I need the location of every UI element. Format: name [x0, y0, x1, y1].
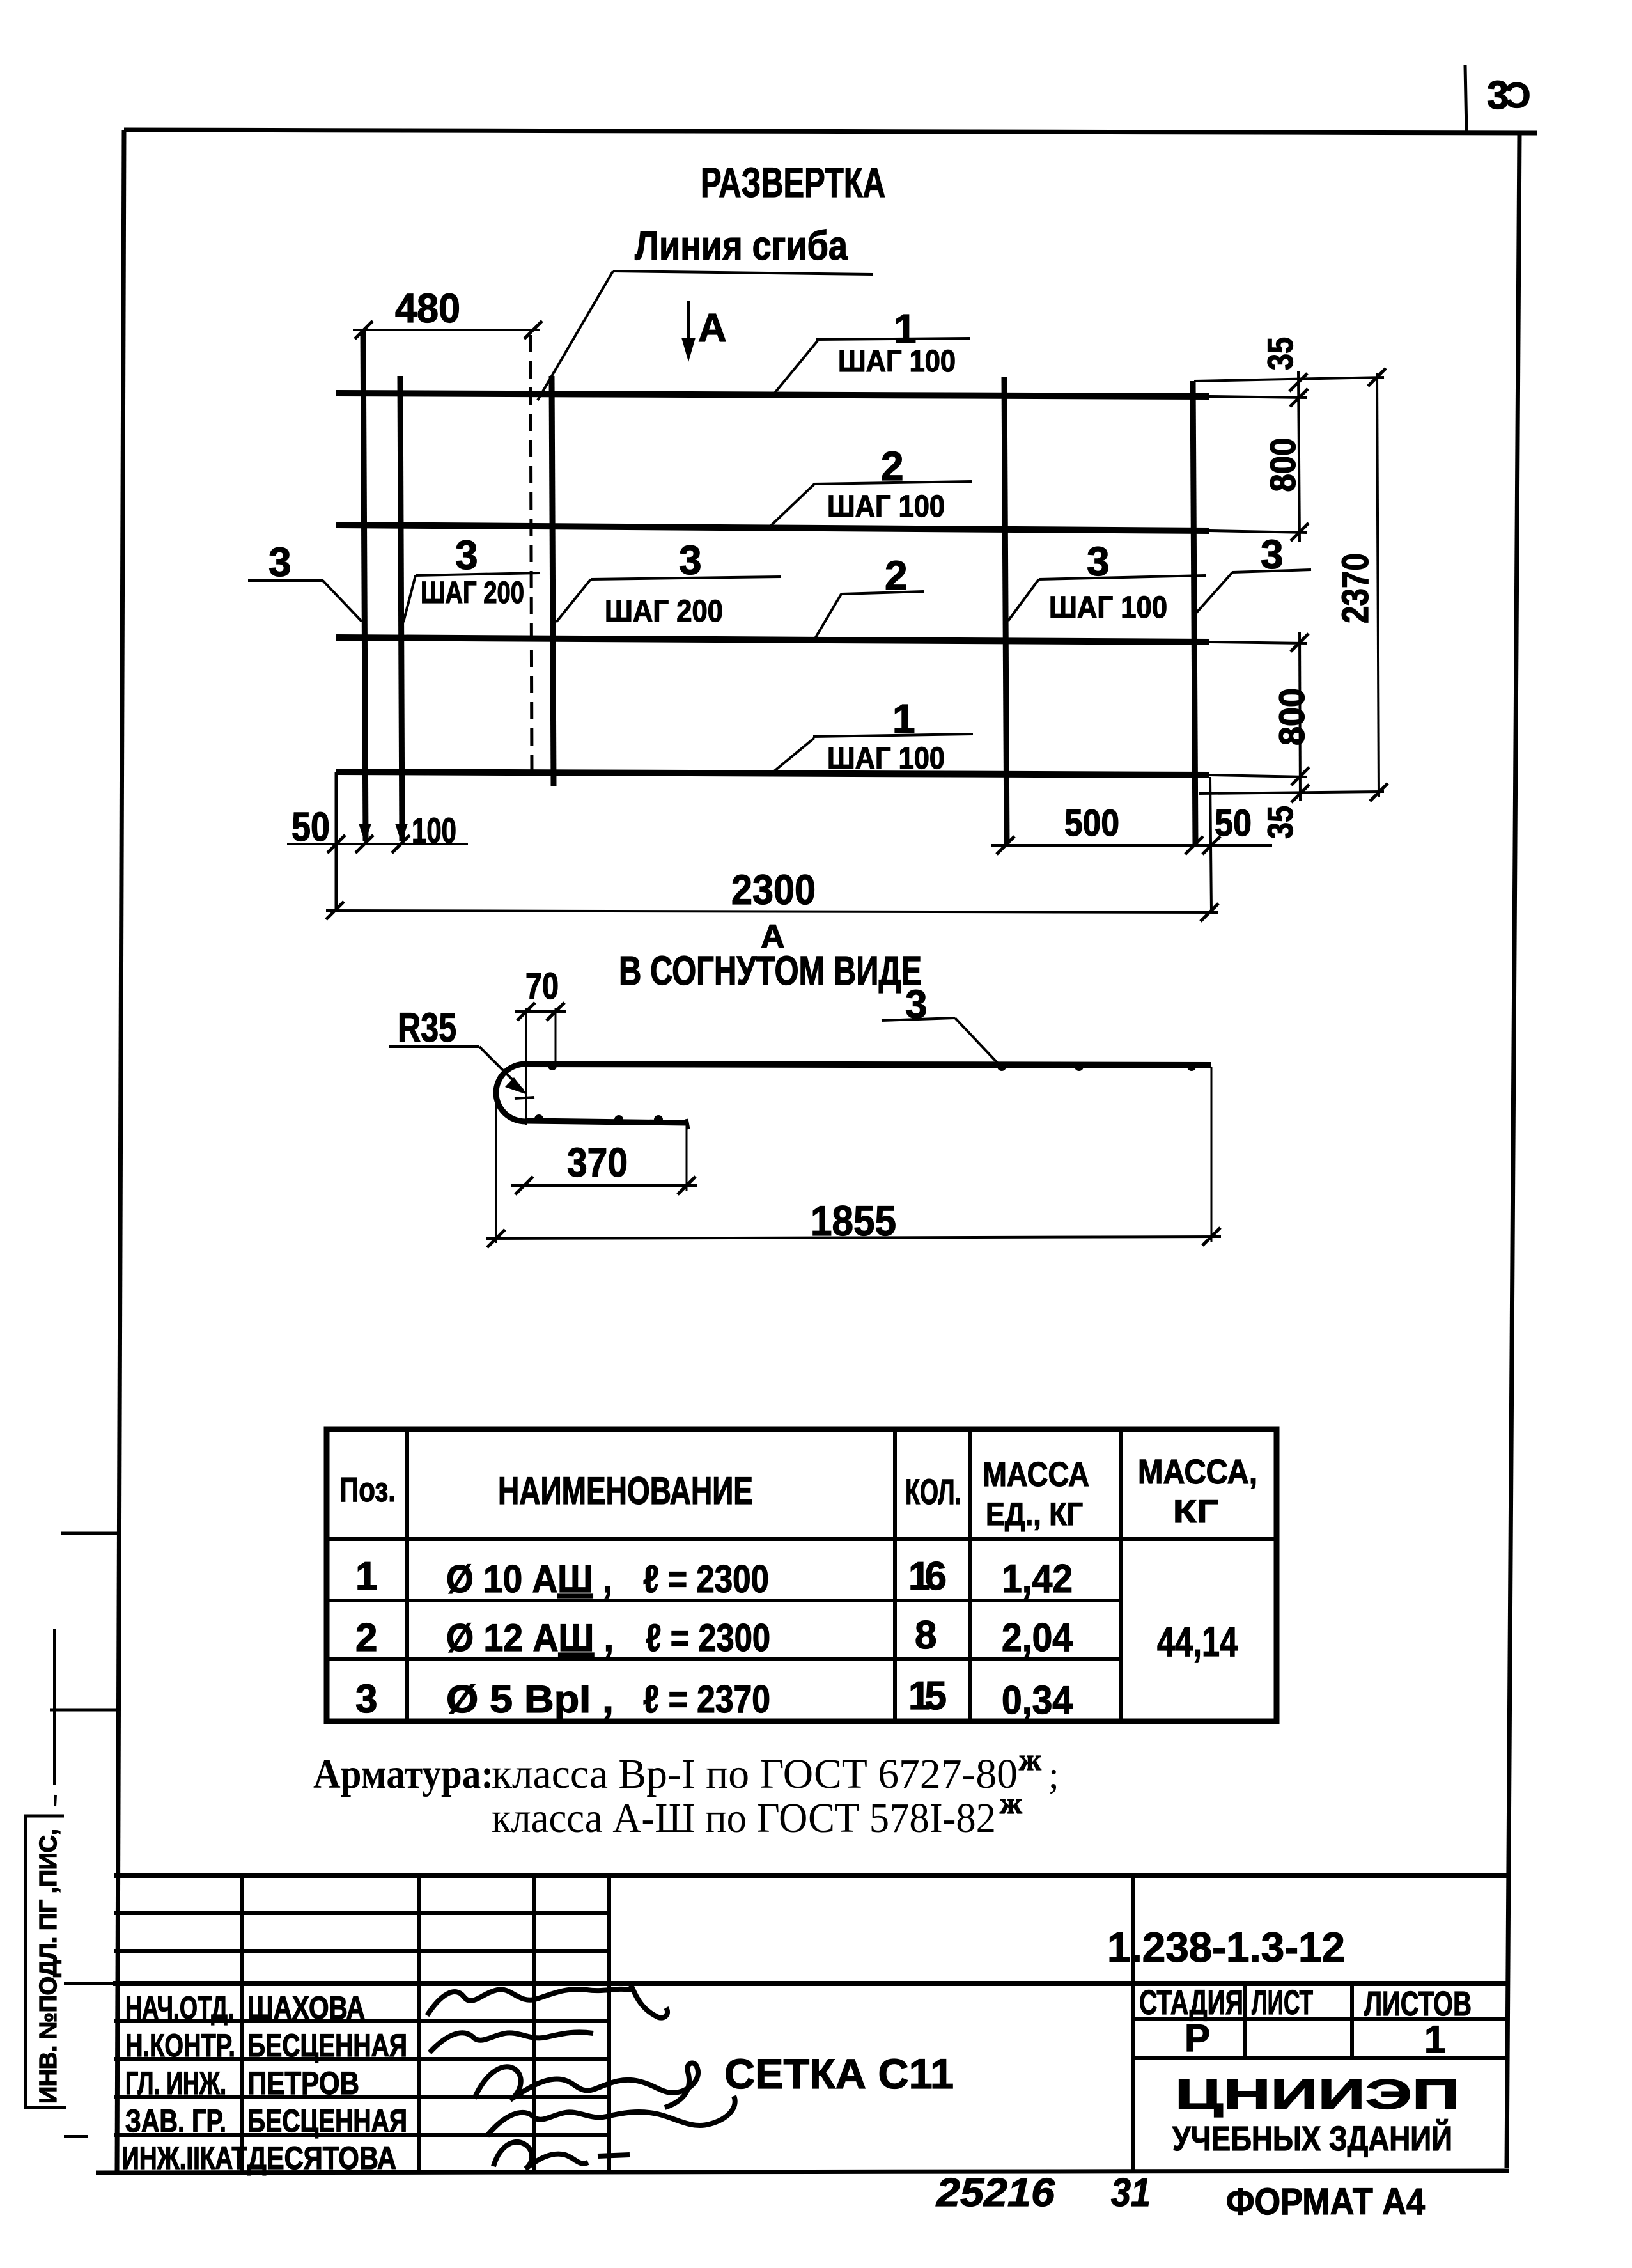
- svg-text:УЧЕБНЫХ ЗДАНИЙ: УЧЕБНЫХ ЗДАНИЙ: [1172, 2119, 1452, 2158]
- svg-text:ЕД., КГ: ЕД., КГ: [986, 1496, 1083, 1532]
- svg-text:ШАГ 100: ШАГ 100: [1049, 591, 1167, 625]
- svg-text:3: 3: [679, 537, 702, 583]
- svg-text:3: 3: [355, 1677, 377, 1721]
- svg-text:ЛИСТОВ: ЛИСТОВ: [1364, 1985, 1472, 2023]
- svg-text:ℓ = 2300: ℓ = 2300: [646, 1616, 770, 1659]
- svg-text:Ø 5 ВрI ,: Ø 5 ВрI ,: [446, 1678, 614, 1721]
- svg-text:ЗАВ. ГР.: ЗАВ. ГР.: [125, 2103, 226, 2139]
- svg-text:ЦНИИЭП: ЦНИИЭП: [1175, 2070, 1459, 2118]
- svg-text:2370: 2370: [1335, 553, 1376, 623]
- svg-text:25216: 25216: [936, 2171, 1055, 2215]
- svg-text:15: 15: [908, 1674, 947, 1718]
- svg-text:НАИМЕНОВАНИЕ: НАИМЕНОВАНИЕ: [498, 1469, 753, 1512]
- svg-text:РАЗВЕРТКА: РАЗВЕРТКА: [701, 159, 885, 206]
- svg-text:КОЛ.: КОЛ.: [905, 1471, 961, 1512]
- svg-text:Р: Р: [1185, 2017, 1210, 2060]
- svg-text:16: 16: [908, 1554, 947, 1599]
- svg-text:1: 1: [1424, 2018, 1445, 2061]
- svg-text:ИНЖ.IIКАТ: ИНЖ.IIКАТ: [121, 2140, 247, 2176]
- svg-text:;: ;: [1048, 1754, 1059, 1796]
- svg-text:ж: ж: [1019, 1743, 1041, 1777]
- svg-text:1: 1: [892, 696, 915, 742]
- svg-text:Поз.: Поз.: [339, 1471, 396, 1509]
- svg-text:31: 31: [1111, 2171, 1151, 2215]
- svg-text:3: 3: [1087, 538, 1110, 584]
- svg-text:Арматура:класса Вр-I по ГОСТ 6: Арматура:класса Вр-I по ГОСТ 6727-80: [313, 1751, 1018, 1797]
- svg-text:БЕСЦЕННАЯ: БЕСЦЕННАЯ: [247, 2103, 407, 2139]
- svg-text:ЛИСТ: ЛИСТ: [1252, 1983, 1313, 2022]
- svg-text:Линия сгиба: Линия сгиба: [635, 223, 848, 269]
- svg-text:Ø 12 АШ ,: Ø 12 АШ ,: [446, 1616, 614, 1659]
- svg-text:480: 480: [395, 285, 460, 331]
- svg-text:ШАГ 200: ШАГ 200: [421, 576, 524, 610]
- svg-text:Ɔ: Ɔ: [1505, 75, 1530, 115]
- svg-text:3: 3: [905, 983, 927, 1027]
- svg-text:ШАГ 200: ШАГ 200: [605, 595, 723, 629]
- svg-text:8: 8: [915, 1613, 936, 1657]
- svg-text:2: 2: [881, 443, 904, 489]
- svg-text:800: 800: [1271, 688, 1312, 746]
- svg-text:R35: R35: [398, 1005, 456, 1051]
- svg-text:СТАДИЯ: СТАДИЯ: [1139, 1983, 1243, 2022]
- svg-text:МАССА,: МАССА,: [1138, 1453, 1257, 1491]
- svg-text:ж: ж: [1000, 1787, 1022, 1820]
- svg-text:50: 50: [291, 804, 330, 850]
- svg-text:35: 35: [1260, 337, 1300, 370]
- svg-text:БЕСЦЕННАЯ: БЕСЦЕННАЯ: [247, 2028, 407, 2063]
- svg-text:ШАГ 100: ШАГ 100: [838, 345, 956, 379]
- svg-text:Ø 10 АШ ,: Ø 10 АШ ,: [446, 1558, 612, 1600]
- svg-text:ПЕТРОВ: ПЕТРОВ: [247, 2065, 359, 2101]
- svg-text:ДЕСЯТОВА: ДЕСЯТОВА: [247, 2140, 396, 2176]
- svg-text:ШАХОВА: ШАХОВА: [247, 1990, 365, 2026]
- svg-text:70: 70: [525, 966, 559, 1007]
- svg-text:ℓ = 2370: ℓ = 2370: [643, 1678, 770, 1721]
- svg-text:1855: 1855: [811, 1197, 896, 1244]
- svg-text:35: 35: [1260, 806, 1300, 839]
- svg-text:КГ: КГ: [1173, 1494, 1218, 1529]
- svg-text:ФОРМАТ А4: ФОРМАТ А4: [1226, 2181, 1425, 2223]
- svg-text:370: 370: [567, 1139, 628, 1185]
- svg-text:800: 800: [1263, 438, 1303, 492]
- svg-text:3: 3: [455, 532, 478, 578]
- svg-text:ℓ = 2300: ℓ = 2300: [643, 1558, 769, 1600]
- svg-text:1,42: 1,42: [1002, 1557, 1073, 1601]
- svg-text:МАССА: МАССА: [983, 1455, 1089, 1494]
- svg-text:44,14: 44,14: [1157, 1618, 1238, 1665]
- svg-text:СЕТКА С11: СЕТКА С11: [724, 2050, 954, 2097]
- svg-text:3: 3: [1261, 531, 1284, 577]
- svg-text:500: 500: [1064, 802, 1119, 844]
- svg-text:класса А-Ш по ГОСТ 578I-82: класса А-Ш по ГОСТ 578I-82: [492, 1795, 996, 1842]
- svg-text:1.238-1.3-12: 1.238-1.3-12: [1107, 1923, 1345, 1971]
- svg-text:2,04: 2,04: [1002, 1616, 1073, 1660]
- svg-text:А: А: [698, 306, 727, 350]
- svg-text:1: 1: [355, 1554, 377, 1599]
- svg-text:0,34: 0,34: [1002, 1678, 1073, 1723]
- svg-text:100: 100: [412, 810, 456, 850]
- svg-text:ШАГ 100: ШАГ 100: [827, 490, 945, 524]
- svg-text:2: 2: [355, 1616, 377, 1660]
- svg-text:2: 2: [885, 552, 908, 598]
- svg-text:ИНВ. №ПОДЛ. ПГ ,ПИС,: ИНВ. №ПОДЛ. ПГ ,ПИС,: [35, 1829, 62, 2104]
- svg-text:ГЛ. ИНЖ.: ГЛ. ИНЖ.: [125, 2065, 226, 2101]
- svg-text:НАЧ.ОТД.: НАЧ.ОТД.: [125, 1990, 234, 2026]
- svg-text:ШАГ 100: ШАГ 100: [827, 742, 945, 776]
- svg-text:3: 3: [268, 539, 291, 585]
- svg-text:2300: 2300: [731, 866, 816, 913]
- svg-text:50: 50: [1215, 802, 1252, 844]
- svg-text:В СОГНУТОМ ВИДЕ: В СОГНУТОМ ВИДЕ: [619, 948, 922, 994]
- svg-text:Н.КОНТР.: Н.КОНТР.: [125, 2028, 235, 2063]
